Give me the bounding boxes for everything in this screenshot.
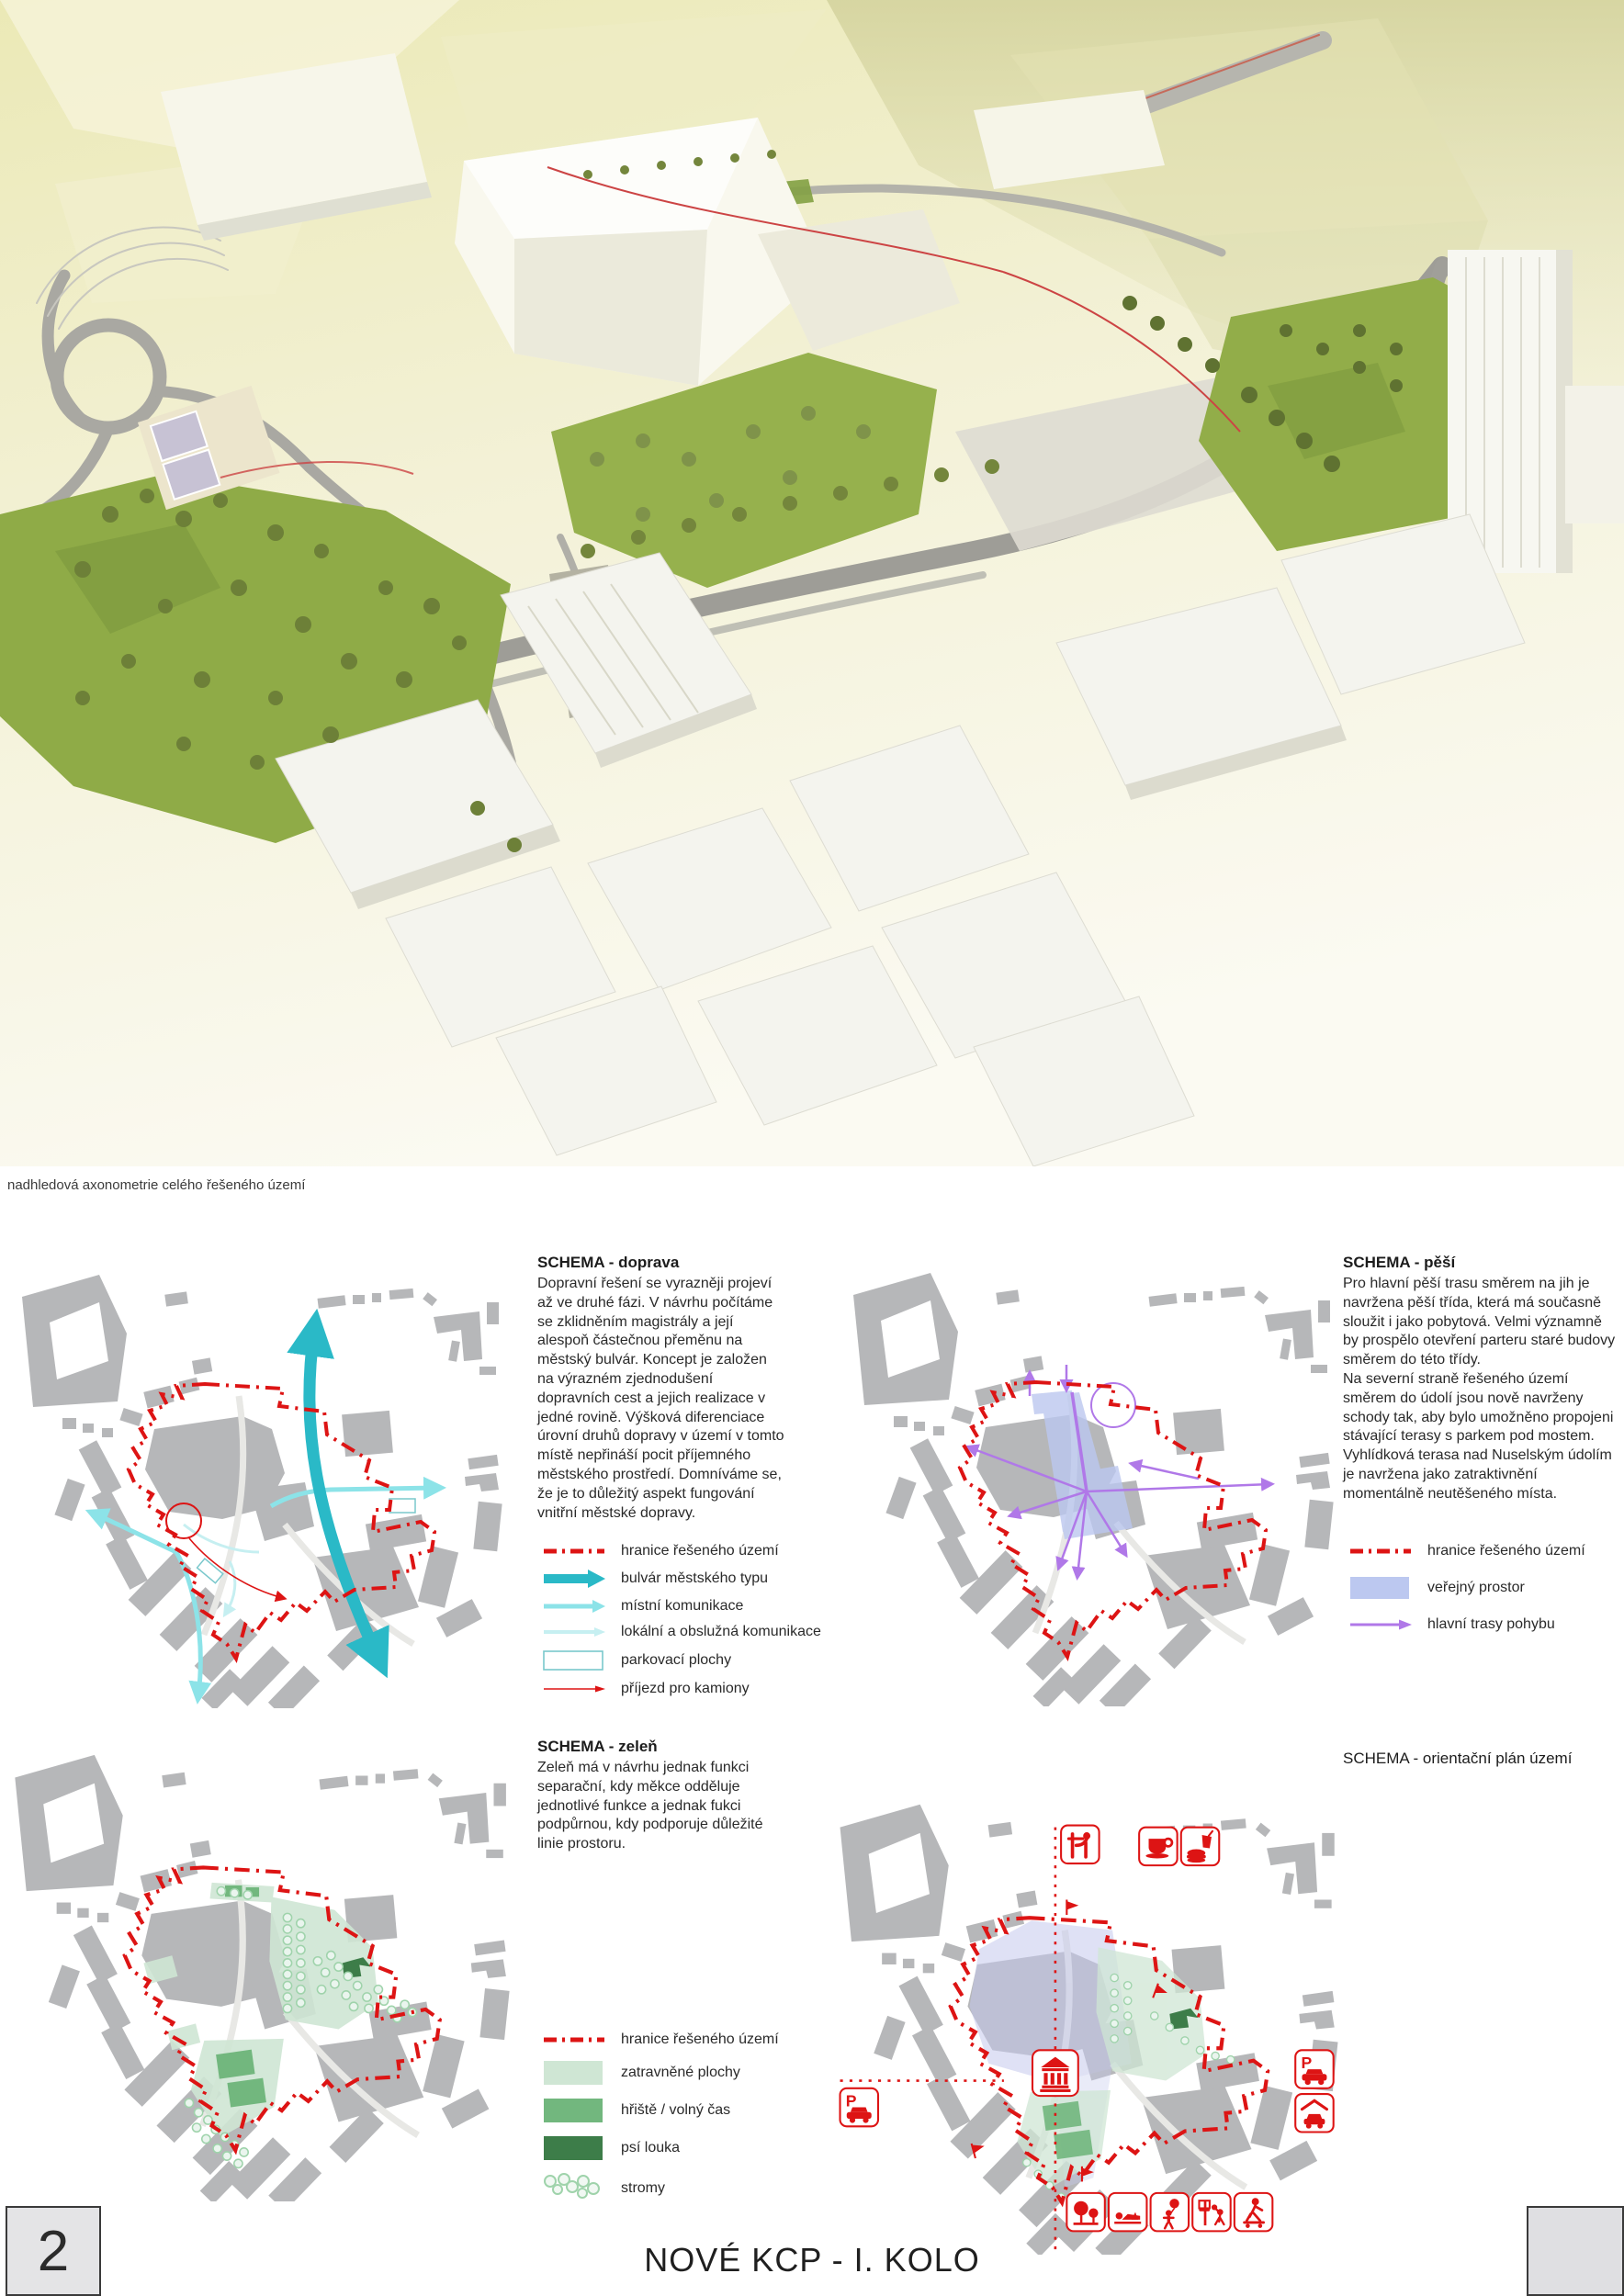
pesi-body-3: Vyhlídková terasa nad Nuselským údolím j…: [1343, 1446, 1618, 1503]
legend-item: příjezd pro kamiony: [542, 1681, 821, 1697]
dog-meadow-swatch: [542, 2135, 606, 2161]
pesi-body-1: Pro hlavní pěší trasu směrem na jih je n…: [1343, 1275, 1618, 1370]
legend-item: hranice řešeného území: [1348, 1543, 1585, 1559]
legend-item: lokální a obslužná komunikace: [542, 1624, 821, 1640]
footer-title: NOVÉ KCP - I. KOLO: [0, 2241, 1624, 2279]
schema-pesi-map: [831, 1247, 1346, 1706]
legend-label: lokální a obslužná komunikace: [621, 1624, 821, 1640]
basketball-icon: [1192, 2193, 1230, 2231]
legend-item: veřejný prostor: [1348, 1576, 1585, 1600]
legend-item: místní komunikace: [542, 1598, 821, 1615]
legend-label: bulvár městského typu: [621, 1570, 768, 1587]
svg-text:P: P: [1301, 2054, 1312, 2072]
legend-label: hranice řešeného území: [621, 2032, 779, 2048]
pesi-legend: hranice řešeného území veřejný prostor h…: [1348, 1543, 1585, 1649]
legend-label: hranice řešeného území: [1427, 1543, 1585, 1559]
public-space-swatch: [1348, 1576, 1413, 1600]
legend-label: parkovací plochy: [621, 1652, 731, 1669]
zelen-legend: hranice řešeného území zatravněné plochy…: [542, 2032, 779, 2216]
playground-area-swatch: [542, 2098, 606, 2123]
svg-text:P: P: [846, 2092, 857, 2110]
zelen-text-block: SCHEMA - zeleň Zeleň má v návrhu jednak …: [537, 1738, 787, 1854]
truck-access-arrow-swatch: [542, 1684, 606, 1694]
orientacni-title: SCHEMA - orientační plán území: [1343, 1750, 1618, 1768]
legend-label: stromy: [621, 2180, 665, 2197]
legend-item: stromy: [542, 2173, 779, 2204]
legend-item: hranice řešeného území: [542, 1543, 821, 1559]
legend-item: zatravněné plochy: [542, 2060, 779, 2086]
local-road-arrow-swatch: [542, 1599, 606, 1614]
viewpoint-icon: [1061, 1826, 1099, 1863]
zelen-title: SCHEMA - zeleň: [537, 1738, 787, 1756]
doprava-title: SCHEMA - doprava: [537, 1254, 787, 1272]
movement-route-arrow-swatch: [1348, 1618, 1413, 1631]
schema-zelen-map: [0, 1728, 514, 2201]
museum-icon: [1032, 2050, 1078, 2096]
pesi-text-block: SCHEMA - pěší Pro hlavní pěší trasu směr…: [1343, 1254, 1618, 1504]
legend-label: hlavní trasy pohybu: [1427, 1616, 1555, 1633]
presentation-board: nadhledová axonometrie celého řešeného ú…: [0, 0, 1624, 2296]
parking-icon: P: [840, 2088, 878, 2126]
legend-item: hlavní trasy pohybu: [1348, 1616, 1585, 1633]
legend-item: hřiště / volný čas: [542, 2098, 779, 2123]
orientacni-text-block: SCHEMA - orientační plán území: [1343, 1750, 1618, 1771]
doprava-text-block: SCHEMA - doprava Dopravní řešení se vyra…: [537, 1254, 787, 1523]
legend-label: místní komunikace: [621, 1598, 743, 1615]
parking-area-swatch: [542, 1649, 606, 1671]
footer-corner-box: [1527, 2206, 1624, 2296]
legend-label: hřiště / volný čas: [621, 2102, 730, 2119]
boundary-line-swatch: [542, 2036, 606, 2043]
legend-item: psí louka: [542, 2135, 779, 2161]
doprava-legend: hranice řešeného území bulvár městského …: [542, 1543, 821, 1706]
aerial-render-illustration: [0, 0, 1624, 1166]
pesi-body-2: Na severní straně řešeného území směrem …: [1343, 1370, 1618, 1446]
fast-food-icon: [1181, 1828, 1219, 1865]
legend-label: hranice řešeného území: [621, 1543, 779, 1559]
trees-swatch: [542, 2173, 606, 2204]
park-trees-icon: [1066, 2193, 1104, 2231]
relax-icon: [1109, 2193, 1146, 2231]
legend-label: zatravněné plochy: [621, 2065, 740, 2081]
legend-item: parkovací plochy: [542, 1649, 821, 1671]
pesi-title: SCHEMA - pěší: [1343, 1254, 1618, 1272]
schema-doprava-map: [0, 1249, 514, 1708]
skateboard-icon: [1235, 2193, 1272, 2231]
garage-icon: [1295, 2094, 1333, 2132]
service-road-arrow-swatch: [542, 1626, 606, 1638]
render-caption: nadhledová axonometrie celého řešeného ú…: [7, 1177, 305, 1193]
legend-label: psí louka: [621, 2140, 680, 2156]
schema-orientacni-map: P P: [827, 1777, 1341, 2255]
boundary-line-swatch: [1348, 1548, 1413, 1555]
doprava-body: Dopravní řešení se vyrazněji projeví až …: [537, 1275, 787, 1523]
cafe-icon: [1139, 1828, 1177, 1865]
parking-icon: P: [1295, 2050, 1333, 2088]
boulevard-arrow-swatch: [542, 1569, 606, 1589]
zelen-body: Zeleň má v návrhu jednak funkci separačn…: [537, 1759, 787, 1854]
legend-label: veřejný prostor: [1427, 1580, 1525, 1596]
legend-item: bulvár městského typu: [542, 1569, 821, 1589]
legend-label: příjezd pro kamiony: [621, 1681, 750, 1697]
boundary-line-swatch: [542, 1548, 606, 1555]
grass-area-swatch: [542, 2060, 606, 2086]
legend-item: hranice řešeného území: [542, 2032, 779, 2048]
kids-play-icon: [1151, 2193, 1189, 2231]
